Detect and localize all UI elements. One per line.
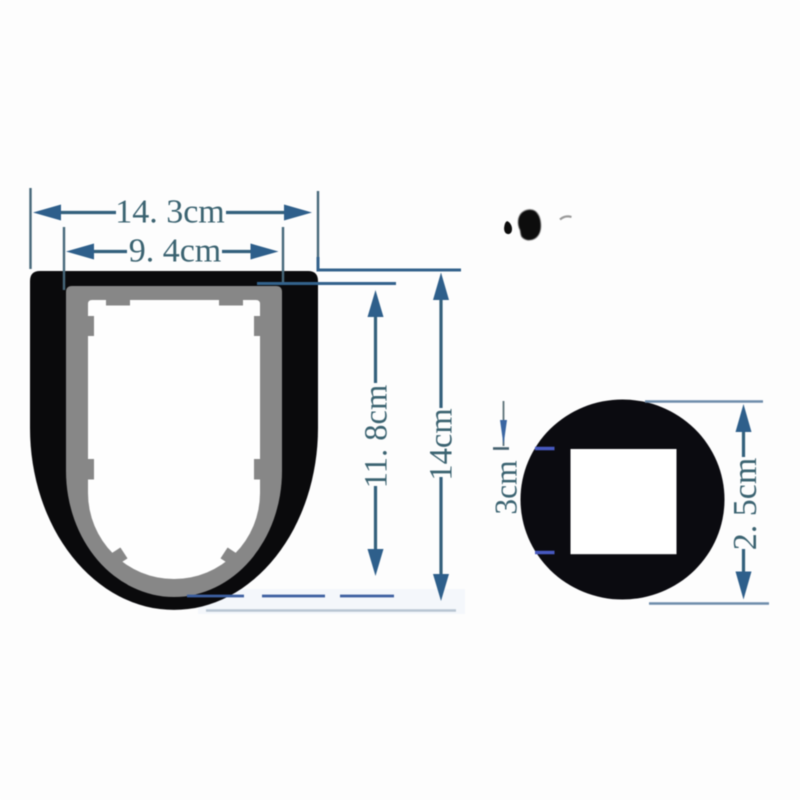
svg-text:9. 4cm: 9. 4cm — [129, 233, 222, 270]
svg-text:3cm: 3cm — [489, 460, 524, 515]
svg-text:14. 3cm: 14. 3cm — [115, 194, 225, 231]
svg-text:11. 8cm: 11. 8cm — [359, 385, 395, 489]
svg-text:2. 5cm: 2. 5cm — [727, 458, 764, 551]
svg-text:14cm: 14cm — [424, 408, 460, 480]
